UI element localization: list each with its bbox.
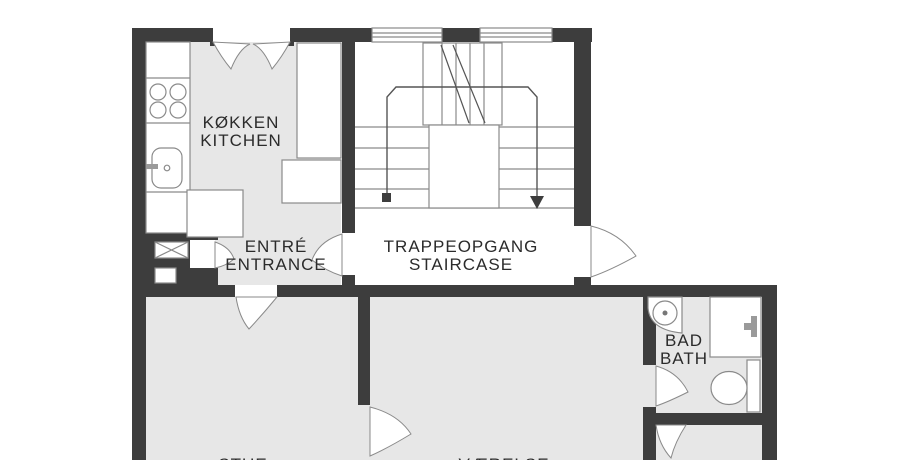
kitchen-unit bbox=[282, 160, 341, 203]
window-icon bbox=[372, 28, 442, 42]
shower-icon bbox=[710, 297, 761, 357]
top-wall-mid bbox=[290, 28, 372, 42]
window-icon bbox=[480, 28, 552, 42]
vestibule-bottom-strip bbox=[190, 268, 218, 285]
duct-shaft-icon bbox=[155, 242, 188, 258]
living-bedroom-wall bbox=[358, 297, 370, 405]
lower-right-wall bbox=[643, 425, 656, 460]
closet-door-niche bbox=[190, 240, 215, 268]
stair-landing bbox=[429, 125, 499, 208]
kitchen-tall-unit bbox=[297, 43, 341, 158]
stair-upper-flight bbox=[423, 43, 502, 125]
kitchen-table bbox=[187, 190, 243, 237]
floor-plan-drawing: KØKKEN KITCHEN ENTRÉ ENTRANCE TRAPPEOPGA… bbox=[0, 0, 905, 460]
outer-wall-right bbox=[762, 297, 777, 460]
staircase-right-wall bbox=[574, 42, 591, 226]
top-wall-kitchen bbox=[132, 28, 213, 42]
floor-plan: KØKKEN KITCHEN ENTRÉ ENTRANCE TRAPPEOPGA… bbox=[0, 0, 905, 460]
bedroom-label: VÆRELSE bbox=[458, 455, 549, 460]
top-wall-corner bbox=[552, 28, 592, 42]
main-cross-wall-left bbox=[132, 285, 235, 297]
outer-wall-left bbox=[132, 28, 146, 460]
bath-left-stub bbox=[643, 407, 656, 413]
staircase-left-wall bbox=[342, 42, 355, 233]
staircase-label-da: TRAPPEOPGANG bbox=[384, 237, 539, 256]
staircase-label-en: STAIRCASE bbox=[409, 255, 513, 274]
closet-box bbox=[155, 268, 176, 283]
entrance-label-en: ENTRANCE bbox=[225, 255, 327, 274]
kitchen-label-en: KITCHEN bbox=[200, 131, 282, 150]
bath-label-da: BAD bbox=[665, 331, 703, 350]
kitchen-label-da: KØKKEN bbox=[203, 113, 280, 132]
direction-start-marker bbox=[382, 193, 391, 202]
main-cross-wall-right bbox=[277, 285, 777, 297]
kitchen-counter bbox=[146, 42, 190, 233]
living-room-label: STUE bbox=[218, 455, 267, 460]
bath-label-en: BATH bbox=[660, 349, 708, 368]
entrance-label-da: ENTRÉ bbox=[245, 237, 308, 256]
bath-bottom-wall bbox=[643, 413, 777, 425]
top-wall-pier bbox=[442, 28, 480, 42]
